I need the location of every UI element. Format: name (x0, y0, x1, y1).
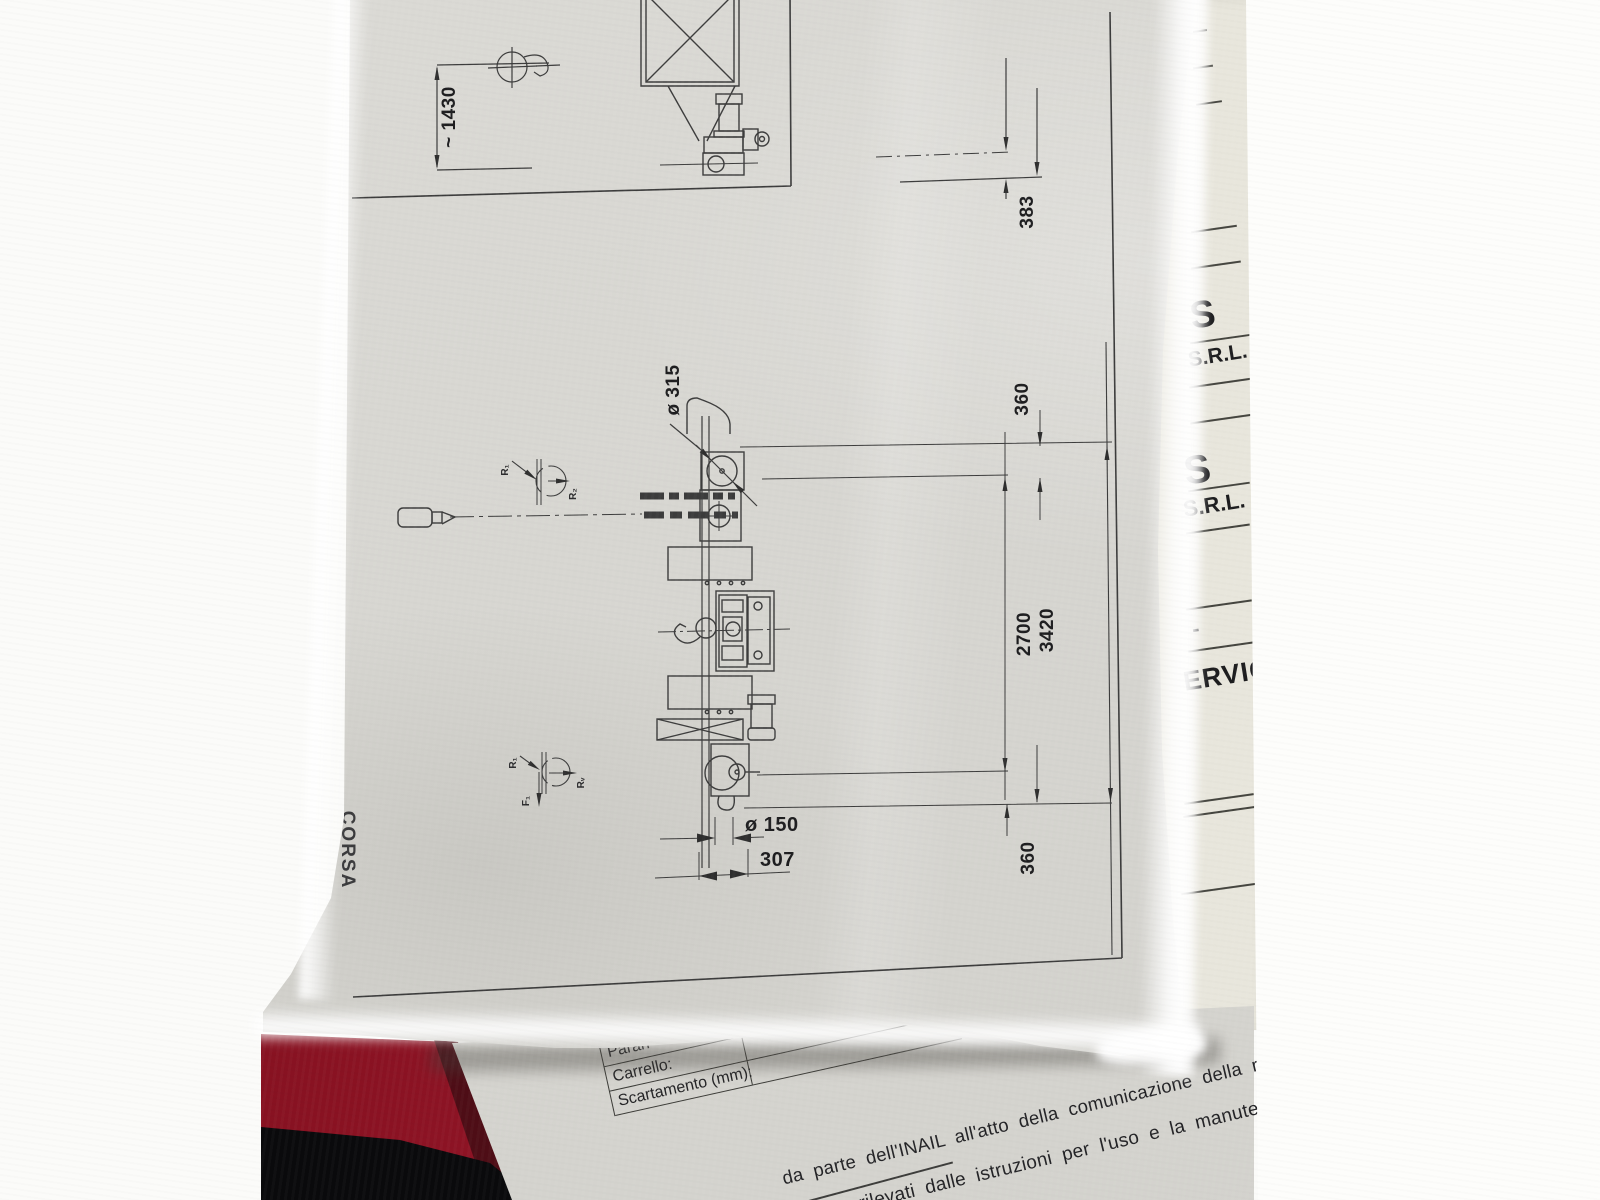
force-label-r2: R₂ (568, 488, 579, 500)
dim-dia150-label: ø 150 (745, 814, 799, 836)
dimension-chain-right: 360 2700 3420 360 (740, 342, 1113, 955)
counterweight-box (641, 0, 739, 86)
dim-360-top-label: 360 (1012, 382, 1033, 415)
dim-1430-label: ~ 1430 (439, 86, 460, 148)
dim-383-label: 383 (1017, 195, 1038, 228)
dimension-307: 307 (655, 849, 795, 881)
dimension-383: 383 (876, 58, 1042, 229)
hoist-gear-housing (716, 591, 774, 671)
force-label-f: F₁ (521, 796, 532, 806)
hook-symbol (488, 47, 560, 88)
view-frame (352, 0, 791, 198)
force-symbol-bottom: R₁ Rᵥ F₁ (508, 752, 587, 807)
force-symbol-top: R₁ R₂ (500, 459, 579, 505)
dim-3420-label: 3420 (1037, 608, 1058, 652)
force-label-r1: R₁ (508, 757, 519, 768)
dim-2700-label: 2700 (1014, 612, 1035, 656)
force-label-r1: R₁ (500, 464, 511, 475)
x-brace-bracket (657, 719, 743, 740)
dimension-dia150: ø 150 (660, 814, 799, 845)
upper-crossmember (668, 547, 752, 580)
dimension-1430: ~ 1430 (435, 47, 561, 170)
pendant-cable (450, 514, 642, 517)
dim-dia315-label: ø 315 (663, 364, 684, 415)
drawing-frame (353, 12, 1122, 997)
dim-360-bottom-label: 360 (1018, 841, 1039, 874)
monorail (702, 416, 709, 868)
dim-307-label: 307 (760, 849, 795, 871)
hoist-motor-front (714, 94, 744, 137)
bottom-travel-wheel (705, 744, 760, 810)
front-view (352, 0, 791, 198)
side-view (398, 398, 790, 868)
dimension-dia315: ø 315 (663, 364, 757, 506)
pendant-control (398, 508, 455, 527)
bolt-dots (705, 581, 744, 584)
force-label-rv: Rᵥ (576, 777, 587, 788)
photo-of-technical-drawing: S S.R.L. S S.R.L. - ERVIC Paran Carrello… (0, 0, 1600, 1200)
hook-block-front (660, 153, 758, 175)
lower-crossmember (668, 676, 752, 709)
